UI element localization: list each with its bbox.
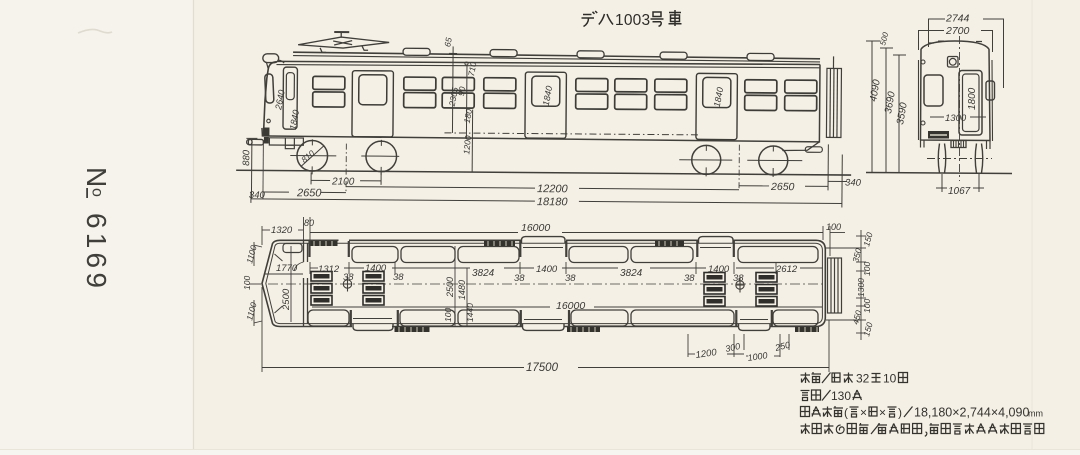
svg-text:1300: 1300 [856,278,866,297]
svg-text:1400: 1400 [365,263,387,274]
svg-text:1200: 1200 [461,135,473,155]
svg-text:880: 880 [241,149,252,166]
svg-text:340: 340 [845,178,862,189]
svg-text:1400: 1400 [708,264,730,275]
svg-text:1003: 1003 [615,12,650,29]
svg-text:16000: 16000 [556,300,585,312]
svg-text:10: 10 [883,372,897,386]
svg-text:100: 100 [242,276,252,290]
svg-text:×: × [860,406,867,420]
svg-text:3824: 3824 [620,268,643,279]
svg-text:2100: 2100 [331,176,355,187]
svg-text:1480: 1480 [457,280,467,300]
svg-text:38: 38 [393,272,404,283]
svg-text:2500: 2500 [445,277,455,298]
svg-text:mm: mm [1028,409,1043,419]
svg-text:17500: 17500 [526,362,559,374]
svg-text:38: 38 [565,273,576,284]
svg-text:1067: 1067 [948,186,971,197]
svg-text:(: ( [844,406,848,420]
svg-text:100: 100 [443,308,453,322]
svg-text:130: 130 [831,389,851,403]
svg-text:1770: 1770 [276,263,298,274]
svg-text:1300: 1300 [945,113,967,124]
svg-text:): ) [898,406,902,420]
svg-text:o: o [89,188,106,197]
svg-text:100: 100 [862,262,872,276]
svg-text:1320: 1320 [271,225,293,236]
svg-text:100: 100 [862,299,872,313]
svg-text:18180: 18180 [537,196,569,208]
svg-text:1800: 1800 [967,87,978,110]
svg-text:2500: 2500 [281,288,292,311]
svg-text:3824: 3824 [472,268,495,279]
svg-text:100: 100 [826,222,841,232]
svg-text:2650: 2650 [770,181,795,193]
svg-text:80: 80 [304,218,314,228]
svg-text:38: 38 [343,272,354,283]
svg-text:32: 32 [856,372,870,386]
svg-text:N: N [81,167,112,187]
svg-text:38: 38 [514,273,525,284]
svg-text:38: 38 [684,273,695,284]
svg-text:2744: 2744 [945,13,970,25]
svg-text:2612: 2612 [775,264,798,275]
svg-text:18,180×2,744×4,090: 18,180×2,744×4,090 [914,406,1029,420]
svg-text:38: 38 [733,273,744,284]
svg-text:6169: 6169 [81,213,112,292]
svg-text:16000: 16000 [521,222,550,234]
svg-text:2700: 2700 [945,25,970,37]
svg-text:1440: 1440 [465,303,475,322]
svg-text:1400: 1400 [536,264,558,275]
svg-text:2650: 2650 [296,187,322,199]
svg-text:×: × [879,406,886,420]
svg-text:12200: 12200 [537,183,569,195]
svg-text:1312: 1312 [318,264,340,275]
